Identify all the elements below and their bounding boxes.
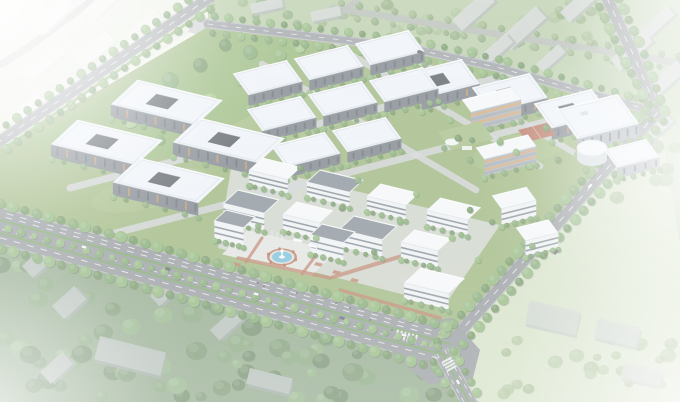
aerial-site-rendering	[0, 0, 680, 402]
masterplan-birdseye-svg	[0, 0, 680, 402]
atmosphere-layer	[0, 0, 680, 402]
white-haze-overlay	[0, 0, 680, 402]
